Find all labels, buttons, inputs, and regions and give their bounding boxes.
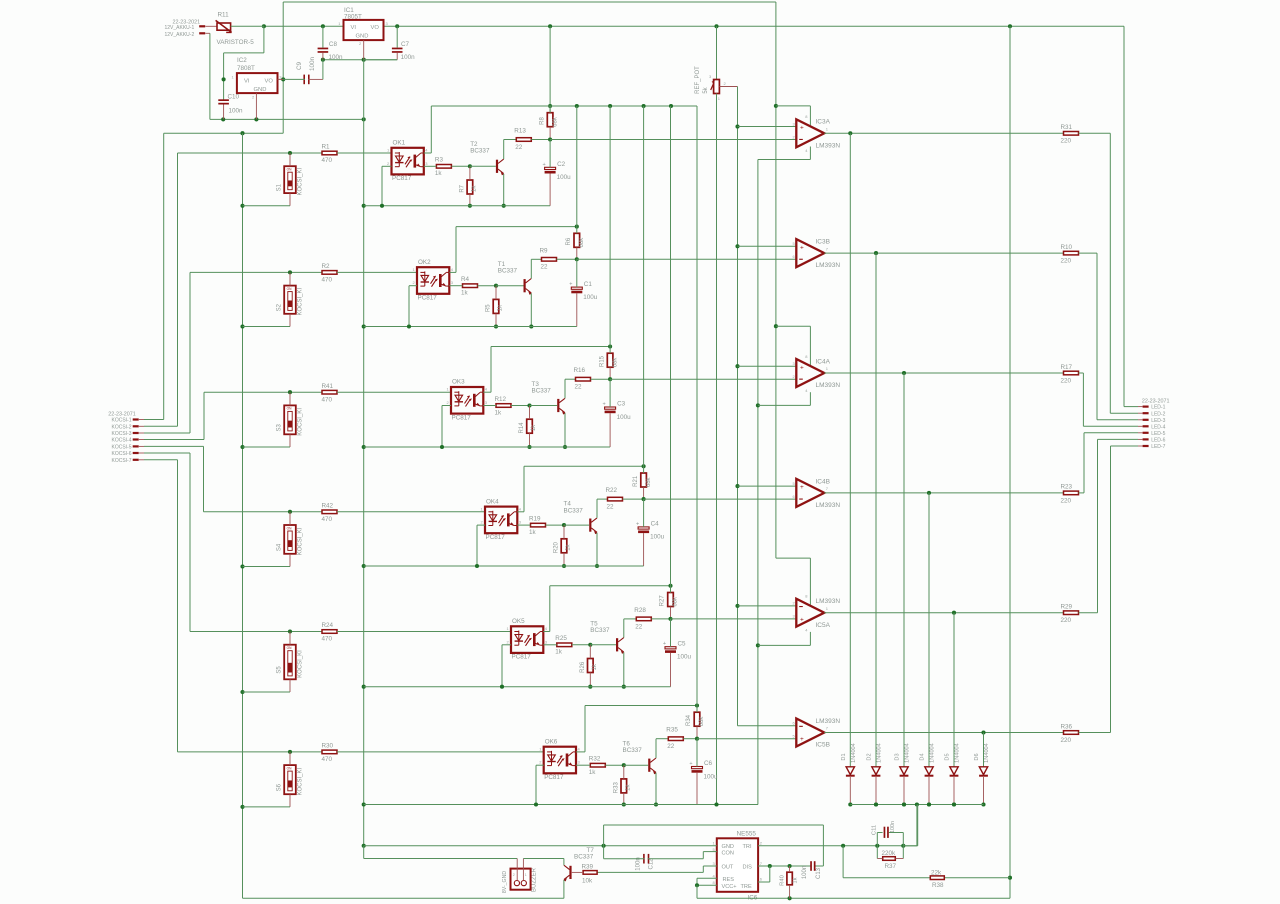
svg-text:1N4004: 1N4004: [905, 743, 911, 763]
svg-text:KOCSI-4: KOCSI-4: [111, 438, 131, 444]
svg-text:LED-5: LED-5: [1151, 431, 1165, 437]
svg-text:R14: R14: [519, 422, 525, 434]
svg-text:100u: 100u: [583, 294, 598, 301]
svg-text:OK6: OK6: [545, 738, 558, 745]
svg-text:1k: 1k: [555, 649, 563, 656]
svg-text:470: 470: [322, 756, 333, 763]
svg-text:68k: 68k: [673, 596, 679, 607]
svg-text:BC337: BC337: [574, 853, 594, 860]
svg-text:TRI: TRI: [743, 844, 752, 850]
svg-text:100u: 100u: [704, 773, 719, 780]
svg-text:R20: R20: [554, 541, 560, 553]
svg-text:+: +: [800, 616, 804, 623]
svg-text:R8: R8: [539, 117, 545, 125]
svg-text:68k: 68k: [699, 716, 705, 727]
svg-text:BC337: BC337: [590, 627, 610, 634]
svg-text:R12: R12: [495, 396, 507, 403]
svg-text:22: 22: [607, 504, 615, 511]
svg-text:R16: R16: [574, 367, 586, 374]
svg-text:100u: 100u: [650, 534, 665, 541]
svg-text:R22: R22: [606, 487, 618, 494]
svg-text:2: 2: [513, 873, 515, 877]
svg-text:BC337: BC337: [470, 148, 490, 155]
svg-text:LM393N: LM393N: [816, 598, 841, 605]
svg-text:DIS: DIS: [743, 864, 753, 870]
svg-text:22: 22: [541, 264, 549, 271]
svg-text:C1: C1: [584, 281, 593, 288]
svg-text:IC5A: IC5A: [816, 622, 831, 629]
svg-text:OK1: OK1: [393, 140, 406, 147]
svg-text:BC337: BC337: [532, 387, 552, 394]
svg-text:C11: C11: [871, 825, 877, 835]
svg-text:470: 470: [322, 636, 333, 643]
svg-text:C9: C9: [296, 61, 303, 70]
svg-text:1N4004: 1N4004: [930, 743, 936, 763]
svg-text:R17: R17: [1061, 364, 1073, 371]
svg-text:D4: D4: [920, 753, 926, 760]
svg-text:R42: R42: [322, 502, 334, 509]
svg-text:KOCSI_KI: KOCSI_KI: [297, 408, 303, 436]
svg-text:220: 220: [1061, 617, 1072, 624]
svg-text:R29: R29: [1061, 604, 1073, 611]
svg-text:1k: 1k: [495, 409, 503, 416]
svg-text:KOCSI-2: KOCSI-2: [111, 424, 131, 430]
svg-text:470: 470: [322, 516, 333, 523]
svg-text:220: 220: [1061, 258, 1072, 265]
svg-text:D2: D2: [867, 753, 873, 760]
svg-text:1k: 1k: [529, 529, 537, 536]
svg-text:REF_POT: REF_POT: [695, 66, 701, 94]
svg-text:IC4B: IC4B: [816, 478, 830, 485]
svg-text:LED-3: LED-3: [1151, 418, 1165, 424]
svg-text:C8: C8: [329, 41, 338, 48]
svg-text:R36: R36: [1061, 723, 1073, 730]
svg-text:1N4004: 1N4004: [984, 743, 990, 763]
svg-text:IC3B: IC3B: [816, 239, 830, 246]
svg-text:KOCSI-3: KOCSI-3: [111, 431, 131, 437]
svg-text:KOCSI-5: KOCSI-5: [111, 445, 131, 451]
svg-text:D3: D3: [895, 753, 901, 760]
svg-text:LED-6: LED-6: [1151, 438, 1165, 444]
svg-text:R4: R4: [461, 276, 470, 283]
svg-text:R13: R13: [514, 128, 526, 135]
svg-text:KOCSI_KI: KOCSI_KI: [297, 767, 303, 795]
svg-text:LED-2: LED-2: [1151, 411, 1165, 417]
svg-text:C6: C6: [704, 760, 713, 767]
svg-text:R10: R10: [1061, 244, 1073, 251]
svg-text:BC337: BC337: [564, 507, 584, 514]
svg-text:VI: VI: [244, 78, 250, 84]
svg-text:GND: GND: [254, 87, 267, 93]
svg-text:RES: RES: [723, 877, 735, 883]
svg-text:OK5: OK5: [512, 618, 525, 625]
svg-text:22: 22: [667, 743, 675, 750]
svg-text:IC4A: IC4A: [816, 358, 831, 365]
svg-text:1k: 1k: [566, 543, 572, 550]
svg-text:S1: S1: [277, 183, 283, 191]
svg-text:ON: ON: [287, 287, 292, 291]
svg-text:OK4: OK4: [486, 498, 499, 505]
svg-text:LM393N: LM393N: [816, 262, 841, 269]
svg-text:NE555: NE555: [737, 831, 757, 838]
svg-text:220: 220: [1061, 737, 1072, 744]
svg-text:VARISTOR-5: VARISTOR-5: [217, 39, 255, 46]
svg-text:BC337: BC337: [623, 747, 643, 754]
svg-text:1k: 1k: [793, 877, 799, 883]
svg-text:1k: 1k: [498, 304, 504, 311]
svg-text:LM393N: LM393N: [816, 142, 841, 149]
svg-text:100u: 100u: [617, 414, 632, 421]
svg-text:100n: 100n: [309, 57, 316, 72]
svg-text:R21: R21: [633, 475, 639, 487]
svg-text:ON: ON: [287, 766, 292, 770]
svg-text:S4: S4: [277, 543, 283, 551]
svg-text:PC817: PC817: [486, 534, 506, 541]
svg-text:R19: R19: [529, 515, 541, 522]
svg-text:470: 470: [322, 157, 333, 164]
svg-text:PC817: PC817: [544, 774, 564, 781]
svg-text:BC337: BC337: [498, 268, 518, 275]
svg-text:R24: R24: [322, 622, 334, 629]
svg-text:R27: R27: [660, 595, 666, 607]
svg-text:22-23-2071: 22-23-2071: [108, 412, 136, 418]
svg-text:ON: ON: [287, 526, 292, 530]
svg-text:BUZZER: BUZZER: [531, 867, 537, 892]
svg-text:LED-4: LED-4: [1151, 424, 1165, 430]
svg-text:470: 470: [322, 277, 333, 284]
svg-text:1k: 1k: [472, 185, 478, 192]
svg-text:1k: 1k: [592, 663, 598, 670]
svg-text:1N4004: 1N4004: [877, 743, 883, 763]
svg-text:C5: C5: [678, 640, 687, 647]
svg-text:1k: 1k: [626, 784, 632, 791]
svg-text:IC3A: IC3A: [816, 119, 831, 126]
svg-text:OK2: OK2: [418, 259, 431, 266]
svg-text:VI: VI: [351, 25, 357, 31]
svg-text:R34: R34: [686, 714, 692, 726]
svg-text:GND: GND: [722, 844, 734, 850]
svg-text:ON: ON: [287, 407, 292, 411]
svg-text:R6: R6: [566, 237, 572, 245]
svg-text:68k: 68k: [552, 116, 558, 127]
svg-text:R7: R7: [460, 184, 466, 192]
svg-text:LM393N: LM393N: [816, 502, 841, 509]
svg-text:GND: GND: [356, 34, 369, 40]
svg-text:+: +: [800, 364, 804, 371]
svg-text:S6: S6: [277, 783, 283, 791]
svg-text:OK3: OK3: [452, 379, 465, 386]
svg-text:1k: 1k: [435, 170, 443, 177]
svg-text:1N4004: 1N4004: [851, 743, 857, 763]
svg-text:TRE: TRE: [741, 884, 752, 890]
svg-text:100u: 100u: [677, 654, 692, 661]
svg-text:12V_AKKU-2: 12V_AKKU-2: [165, 32, 195, 38]
svg-text:220: 220: [1061, 138, 1072, 145]
svg-text:PC817: PC817: [512, 654, 532, 661]
svg-text:1k: 1k: [461, 290, 469, 297]
svg-text:LED-7: LED-7: [1151, 444, 1165, 450]
svg-text:ON: ON: [287, 168, 292, 172]
svg-text:22: 22: [635, 623, 643, 630]
svg-text:220: 220: [1061, 497, 1072, 504]
svg-text:68k: 68k: [612, 357, 618, 368]
svg-text:IC2: IC2: [237, 57, 247, 64]
svg-text:68k: 68k: [646, 476, 652, 487]
svg-text:R2: R2: [322, 263, 331, 270]
svg-text:ON: ON: [287, 646, 292, 650]
svg-text:R38: R38: [932, 882, 944, 889]
svg-text:470: 470: [322, 396, 333, 403]
svg-text:22-23-2071: 22-23-2071: [1142, 398, 1170, 404]
svg-text:1N4004: 1N4004: [955, 743, 961, 763]
svg-text:CON: CON: [722, 851, 734, 857]
svg-text:22: 22: [575, 384, 583, 391]
svg-text:KOCSI-6: KOCSI-6: [111, 451, 131, 457]
svg-text:10k: 10k: [582, 877, 593, 884]
svg-text:R28: R28: [634, 607, 646, 614]
svg-text:D6: D6: [974, 753, 980, 760]
svg-text:R31: R31: [1061, 124, 1073, 131]
svg-text:S2: S2: [277, 303, 283, 311]
svg-text:C10: C10: [228, 94, 240, 101]
svg-text:R32: R32: [589, 756, 601, 763]
svg-text:PC817: PC817: [452, 414, 472, 421]
svg-text:100n: 100n: [329, 54, 344, 61]
svg-text:KOCSI_KI: KOCSI_KI: [297, 650, 303, 678]
svg-text:D1: D1: [841, 753, 847, 760]
svg-text:220: 220: [1061, 377, 1072, 384]
svg-text:R39: R39: [582, 863, 594, 870]
svg-text:R23: R23: [1061, 484, 1073, 491]
svg-text:R15: R15: [599, 355, 605, 367]
svg-text:R30: R30: [322, 743, 334, 750]
svg-text:22: 22: [515, 144, 523, 151]
svg-text:LED-1: LED-1: [1151, 405, 1165, 411]
svg-text:+: +: [800, 736, 804, 743]
svg-text:8V-_GND: 8V-_GND: [502, 871, 508, 893]
svg-text:KOCSI_KI: KOCSI_KI: [297, 288, 303, 316]
svg-text:R41: R41: [322, 383, 334, 390]
svg-text:LM393N: LM393N: [816, 382, 841, 389]
svg-text:R37: R37: [885, 863, 897, 870]
svg-text:R25: R25: [555, 635, 567, 642]
svg-text:KOCSI-1: KOCSI-1: [111, 418, 131, 424]
svg-text:1: 1: [525, 873, 527, 877]
svg-text:VO: VO: [265, 78, 274, 84]
svg-text:R9: R9: [540, 247, 549, 254]
svg-text:S3: S3: [277, 424, 283, 432]
svg-text:7808T: 7808T: [237, 65, 255, 72]
svg-text:100n: 100n: [229, 108, 244, 115]
svg-text:PC817: PC817: [418, 295, 438, 302]
svg-text:5k: 5k: [703, 86, 709, 93]
svg-text:R11: R11: [218, 11, 230, 18]
svg-text:IC5B: IC5B: [816, 742, 830, 749]
svg-text:C13: C13: [816, 867, 822, 879]
svg-text:KOCSI-7: KOCSI-7: [111, 458, 131, 464]
svg-text:68k: 68k: [579, 237, 585, 248]
svg-text:R35: R35: [666, 727, 678, 734]
svg-text:1k: 1k: [531, 424, 537, 431]
svg-text:C4: C4: [651, 521, 660, 528]
svg-text:C7: C7: [401, 41, 410, 48]
svg-text:KOCSI_KI: KOCSI_KI: [297, 527, 303, 555]
svg-text:R33: R33: [614, 782, 620, 794]
svg-text:+: +: [800, 484, 804, 491]
svg-text:1k: 1k: [589, 769, 597, 776]
svg-text:OUT: OUT: [722, 864, 734, 870]
svg-text:100n: 100n: [802, 866, 808, 879]
svg-text:C3: C3: [617, 401, 626, 408]
svg-text:C2: C2: [557, 161, 566, 168]
svg-text:KOCSI_KI: KOCSI_KI: [297, 167, 303, 195]
svg-text:100n: 100n: [890, 821, 896, 833]
svg-text:100n: 100n: [636, 857, 642, 870]
svg-text:12V_AKKU-1: 12V_AKKU-1: [165, 25, 195, 31]
svg-text:PC817: PC817: [392, 175, 412, 182]
svg-text:100u: 100u: [557, 174, 572, 181]
svg-text:S5: S5: [277, 666, 283, 674]
svg-text:100n: 100n: [401, 54, 416, 61]
svg-text:R5: R5: [486, 304, 492, 312]
svg-text:R3: R3: [435, 157, 444, 164]
svg-text:+: +: [800, 244, 804, 251]
svg-text:R1: R1: [322, 144, 331, 151]
svg-text:R40: R40: [779, 875, 785, 886]
svg-text:D5: D5: [945, 753, 951, 760]
svg-text:LM393N: LM393N: [816, 718, 841, 725]
svg-text:R26: R26: [580, 661, 586, 673]
svg-text:+: +: [800, 125, 804, 132]
svg-text:VCC+: VCC+: [722, 884, 737, 890]
svg-text:VO: VO: [371, 25, 380, 31]
